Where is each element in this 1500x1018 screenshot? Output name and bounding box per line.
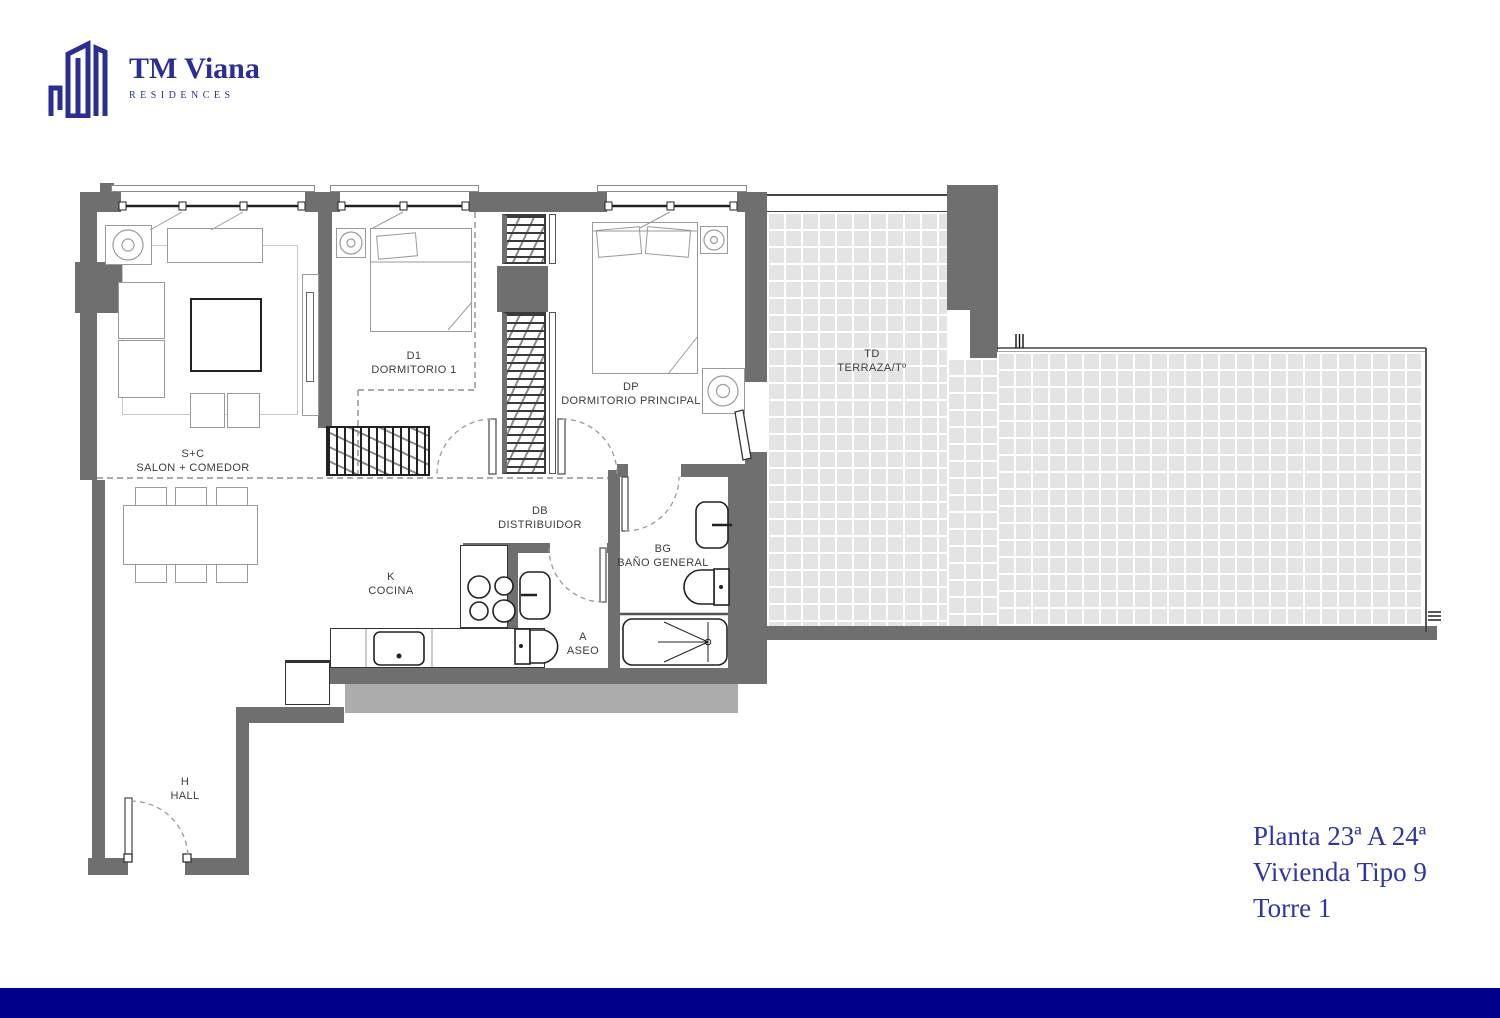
title-vivienda: Vivienda Tipo 9 — [1253, 854, 1427, 890]
wall — [469, 192, 607, 212]
brand-logo: TM Viana RESIDENCES — [45, 30, 260, 118]
room-label-bano-general: BG BAÑO GENERAL — [617, 542, 709, 570]
wall — [745, 452, 767, 477]
room-code: DB — [532, 505, 548, 517]
brand-building-icon — [45, 30, 117, 118]
armchair — [105, 225, 152, 265]
nightstand — [336, 228, 366, 258]
wall — [745, 192, 767, 382]
wall-column — [75, 262, 122, 313]
wall-terrace-edge — [763, 626, 1437, 640]
wall — [617, 464, 628, 477]
wardrobe-dormitorio1 — [326, 426, 430, 476]
room-code: S+C — [182, 448, 205, 460]
wall — [80, 192, 97, 480]
wardrobe — [502, 312, 546, 474]
window-sill — [597, 185, 747, 192]
room-code: DP — [623, 381, 639, 393]
dining-table — [123, 505, 258, 565]
wardrobe — [502, 214, 546, 264]
door-arc-dp — [562, 419, 617, 474]
door-leaf-aseo — [600, 548, 606, 602]
room-name: SALON + COMEDOR — [136, 462, 249, 474]
wardrobe-front — [549, 312, 556, 474]
kitchen-counter — [460, 545, 508, 628]
chair — [135, 564, 167, 583]
sofa-cushion — [118, 282, 165, 339]
wall-shaft — [497, 266, 548, 312]
room-label-aseo: A ASEO — [567, 630, 599, 658]
room-name: BAÑO GENERAL — [617, 557, 709, 569]
shower-drain — [658, 622, 711, 662]
room-label-hall: H HALL — [170, 775, 199, 803]
terrace-tiles — [767, 212, 947, 626]
room-name: DORMITORIO PRINCIPAL — [561, 395, 701, 407]
sofa-cushion — [118, 340, 165, 398]
bedroom-chair — [702, 368, 745, 414]
room-name: TERRAZA/Tº — [837, 362, 906, 374]
room-label-salon: S+C SALON + COMEDOR — [136, 447, 249, 475]
sofa-back-cushion — [167, 228, 263, 263]
room-code: H — [181, 776, 189, 788]
room-label-dormitorio-principal: DP DORMITORIO PRINCIPAL — [561, 380, 701, 408]
room-code: TD — [864, 348, 879, 360]
pouf — [227, 393, 260, 428]
window-sill — [330, 185, 479, 192]
aseo-basin — [520, 572, 550, 619]
tv — [306, 292, 314, 382]
window-sill — [111, 185, 315, 192]
door-arc-bg — [625, 477, 679, 531]
wall — [236, 715, 249, 875]
chair — [175, 564, 207, 583]
coffee-table — [190, 298, 262, 372]
door-arc-aseo — [549, 548, 603, 602]
room-code: A — [579, 631, 587, 643]
room-name: COCINA — [368, 585, 413, 597]
wall — [92, 480, 105, 875]
door-leaf-d1 — [489, 419, 496, 474]
chair — [135, 487, 167, 506]
footer-bar — [0, 988, 1500, 1018]
wardrobe-front — [549, 214, 556, 264]
title-planta: Planta 23ª A 24ª — [1253, 818, 1427, 854]
door-leaf-dp — [558, 419, 565, 474]
chair — [216, 487, 248, 506]
wall — [318, 212, 332, 428]
door-arc-d1 — [437, 419, 492, 474]
kitchen-appliance — [285, 660, 330, 705]
room-code: K — [387, 571, 395, 583]
bg-toilet-cistern — [714, 569, 729, 605]
wall-pier — [970, 310, 998, 358]
terrace-tiles — [947, 358, 997, 626]
room-name: DORMITORIO 1 — [371, 364, 456, 376]
bg-toilet-bowl — [684, 570, 714, 604]
chair — [175, 487, 207, 506]
terrace-tiles — [997, 352, 1421, 626]
door-leaf-entrance — [125, 798, 132, 858]
slab-edge — [345, 684, 738, 713]
wall — [88, 858, 128, 875]
brand-name: TM Viana — [129, 52, 260, 86]
shower-tray — [623, 619, 727, 665]
wall — [305, 192, 340, 212]
wall-pier — [947, 185, 998, 310]
wall — [728, 477, 767, 668]
door-leaf-bg — [622, 477, 628, 531]
brand-tagline: RESIDENCES — [129, 90, 260, 101]
room-name: ASEO — [567, 645, 599, 657]
room-label-dormitorio1: D1 DORMITORIO 1 — [371, 349, 456, 377]
room-label-distribuidor: DB DISTRIBUIDOR — [498, 504, 582, 532]
title-torre: Torre 1 — [1253, 890, 1427, 926]
nightstand — [700, 226, 728, 254]
pouf — [190, 393, 225, 428]
floorplan-page: { "brand": { "name": "TM Viana", "taglin… — [0, 0, 1500, 1018]
room-label-cocina: K COCINA — [368, 570, 413, 598]
terrace-parapet — [767, 194, 947, 212]
door-arc-entrance — [131, 801, 188, 858]
wall — [330, 668, 767, 684]
room-label-terraza: TD TERRAZA/Tº — [837, 347, 906, 375]
room-name: DISTRIBUIDOR — [498, 519, 582, 531]
room-code: D1 — [407, 350, 422, 362]
kitchen-counter — [330, 628, 545, 668]
room-code: BG — [655, 543, 672, 555]
wall — [95, 192, 121, 212]
wall — [236, 707, 344, 723]
chair — [216, 564, 248, 583]
pillow — [596, 226, 642, 258]
title-block: Planta 23ª A 24ª Vivienda Tipo 9 Torre 1 — [1253, 818, 1427, 926]
pillow — [376, 232, 418, 259]
room-name: HALL — [170, 790, 199, 802]
wall — [681, 464, 745, 477]
pillow — [645, 226, 691, 258]
